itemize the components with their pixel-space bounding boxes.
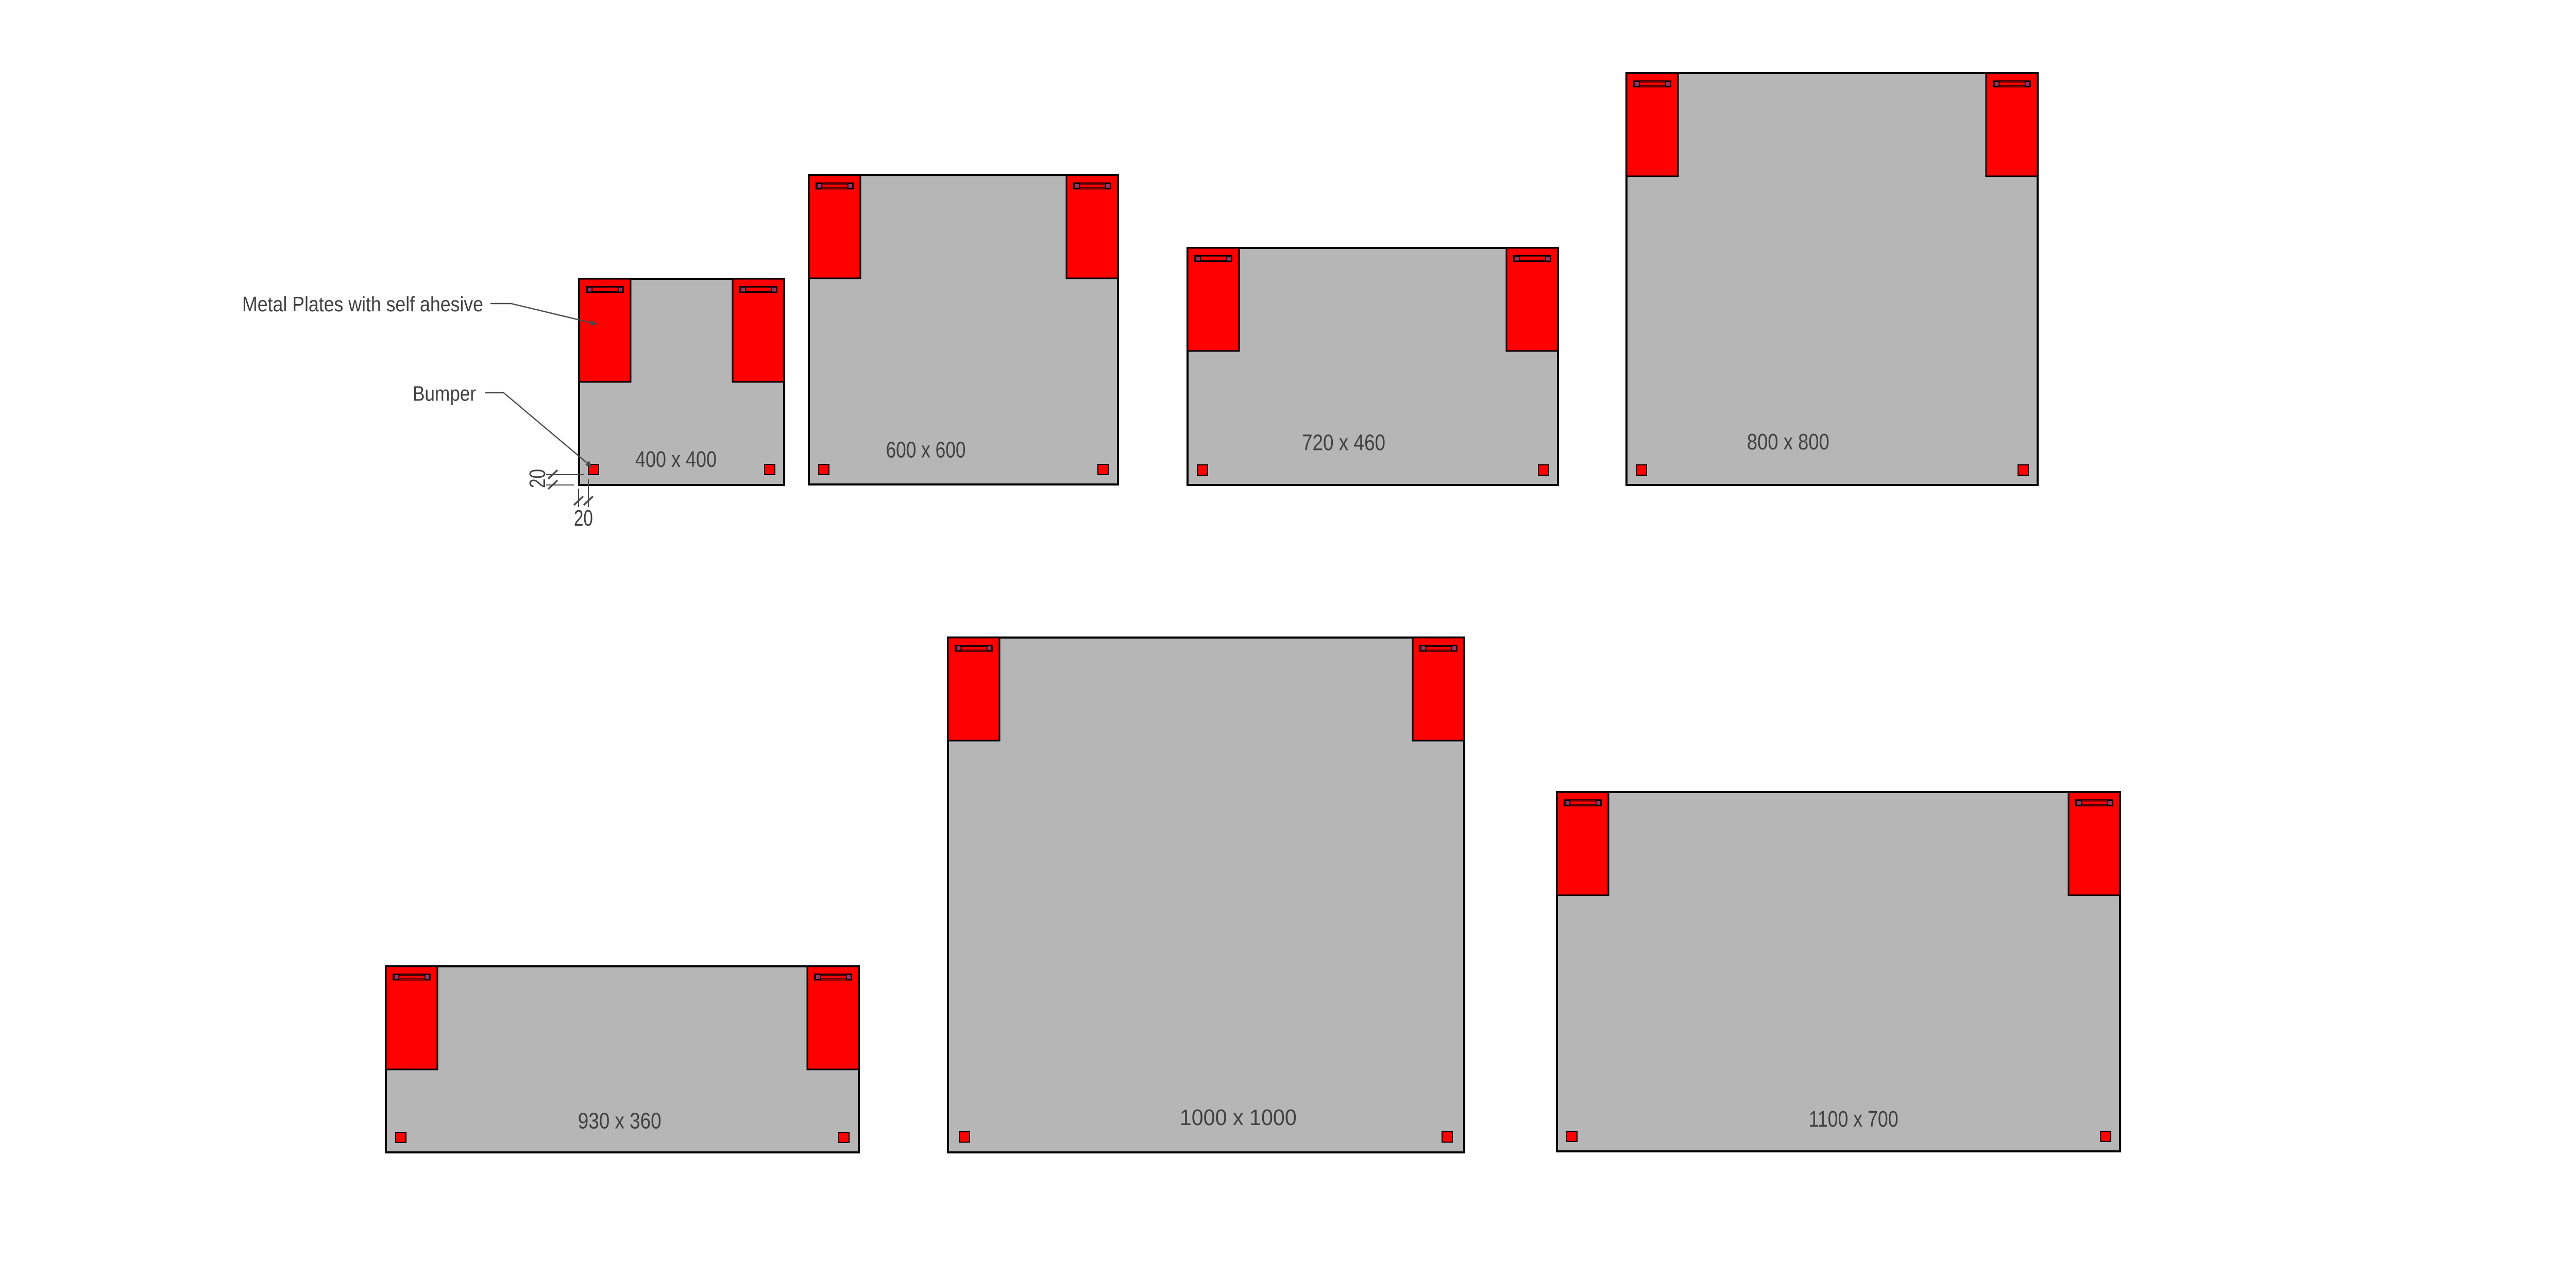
svg-text:20: 20 (574, 506, 593, 531)
svg-text:930 x 360: 930 x 360 (578, 1109, 662, 1134)
svg-text:400 x 400: 400 x 400 (635, 447, 717, 472)
svg-text:800 x 800: 800 x 800 (1747, 429, 1829, 455)
svg-text:1000 x 1000: 1000 x 1000 (1180, 1105, 1297, 1130)
svg-text:600 x 600: 600 x 600 (886, 438, 966, 463)
svg-text:1100 x 700: 1100 x 700 (1809, 1107, 1899, 1132)
svg-text:720 x 460: 720 x 460 (1302, 430, 1385, 455)
svg-text:Metal Plates with self ahesive: Metal Plates with self ahesive (242, 292, 483, 316)
svg-text:Bumper: Bumper (413, 382, 476, 406)
svg-text:20: 20 (525, 469, 550, 488)
